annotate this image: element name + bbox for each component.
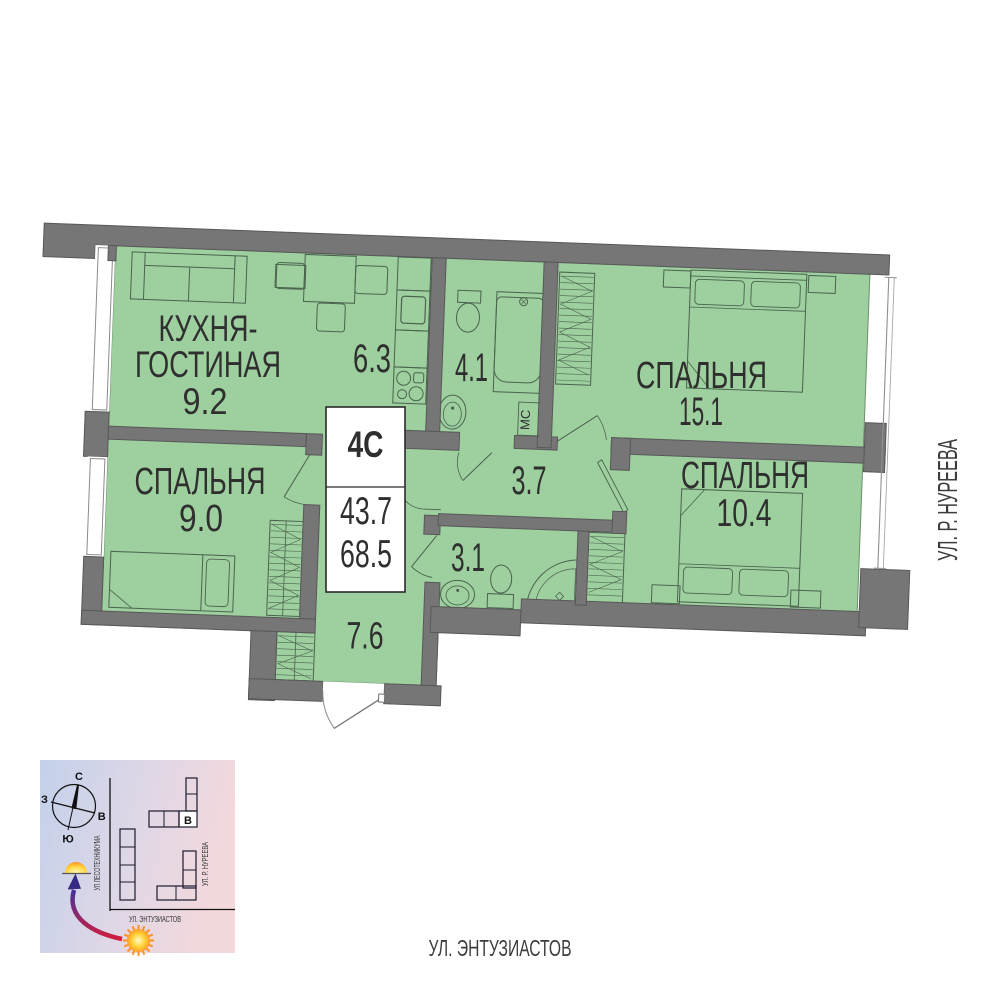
svg-text:УЛ. Р. НУРЕЕВА: УЛ. Р. НУРЕЕВА bbox=[201, 842, 210, 886]
svg-text:6.3: 6.3 bbox=[353, 337, 391, 381]
svg-text:3.7: 3.7 bbox=[512, 459, 547, 503]
svg-text:9.2: 9.2 bbox=[183, 381, 228, 422]
svg-text:УЛ ЛЕСОТЕХНИКУМА: УЛ ЛЕСОТЕХНИКУМА bbox=[93, 835, 102, 890]
svg-text:3.1: 3.1 bbox=[451, 536, 485, 580]
svg-text:7.6: 7.6 bbox=[347, 616, 384, 658]
svg-text:4С: 4С bbox=[348, 424, 384, 465]
svg-text:В: В bbox=[184, 815, 192, 827]
svg-text:68.5: 68.5 bbox=[340, 533, 392, 576]
svg-text:В: В bbox=[98, 811, 106, 823]
svg-text:10.4: 10.4 bbox=[717, 492, 772, 535]
svg-text:С: С bbox=[75, 771, 83, 783]
svg-text:Ю: Ю bbox=[62, 834, 73, 846]
svg-text:УЛ. ЭНТУЗИАСТОВ: УЛ. ЭНТУЗИАСТОВ bbox=[429, 935, 572, 961]
svg-text:З: З bbox=[41, 794, 48, 806]
svg-text:СПАЛЬНЯ: СПАЛЬНЯ bbox=[681, 455, 809, 497]
svg-text:9.0: 9.0 bbox=[179, 498, 223, 540]
svg-text:МС: МС bbox=[517, 409, 533, 430]
svg-text:КУХНЯ-: КУХНЯ- bbox=[159, 308, 258, 349]
svg-text:ГОСТИНАЯ: ГОСТИНАЯ bbox=[135, 344, 281, 385]
svg-text:СПАЛЬНЯ: СПАЛЬНЯ bbox=[135, 461, 266, 503]
svg-text:15.1: 15.1 bbox=[679, 390, 723, 434]
svg-text:УЛ. ЭНТУЗИАСТОВ: УЛ. ЭНТУЗИАСТОВ bbox=[129, 914, 181, 924]
svg-text:УЛ. Р. НУРЕЕВА: УЛ. Р. НУРЕЕВА bbox=[932, 439, 963, 561]
svg-text:43.7: 43.7 bbox=[340, 490, 392, 533]
svg-text:4.1: 4.1 bbox=[455, 346, 488, 390]
